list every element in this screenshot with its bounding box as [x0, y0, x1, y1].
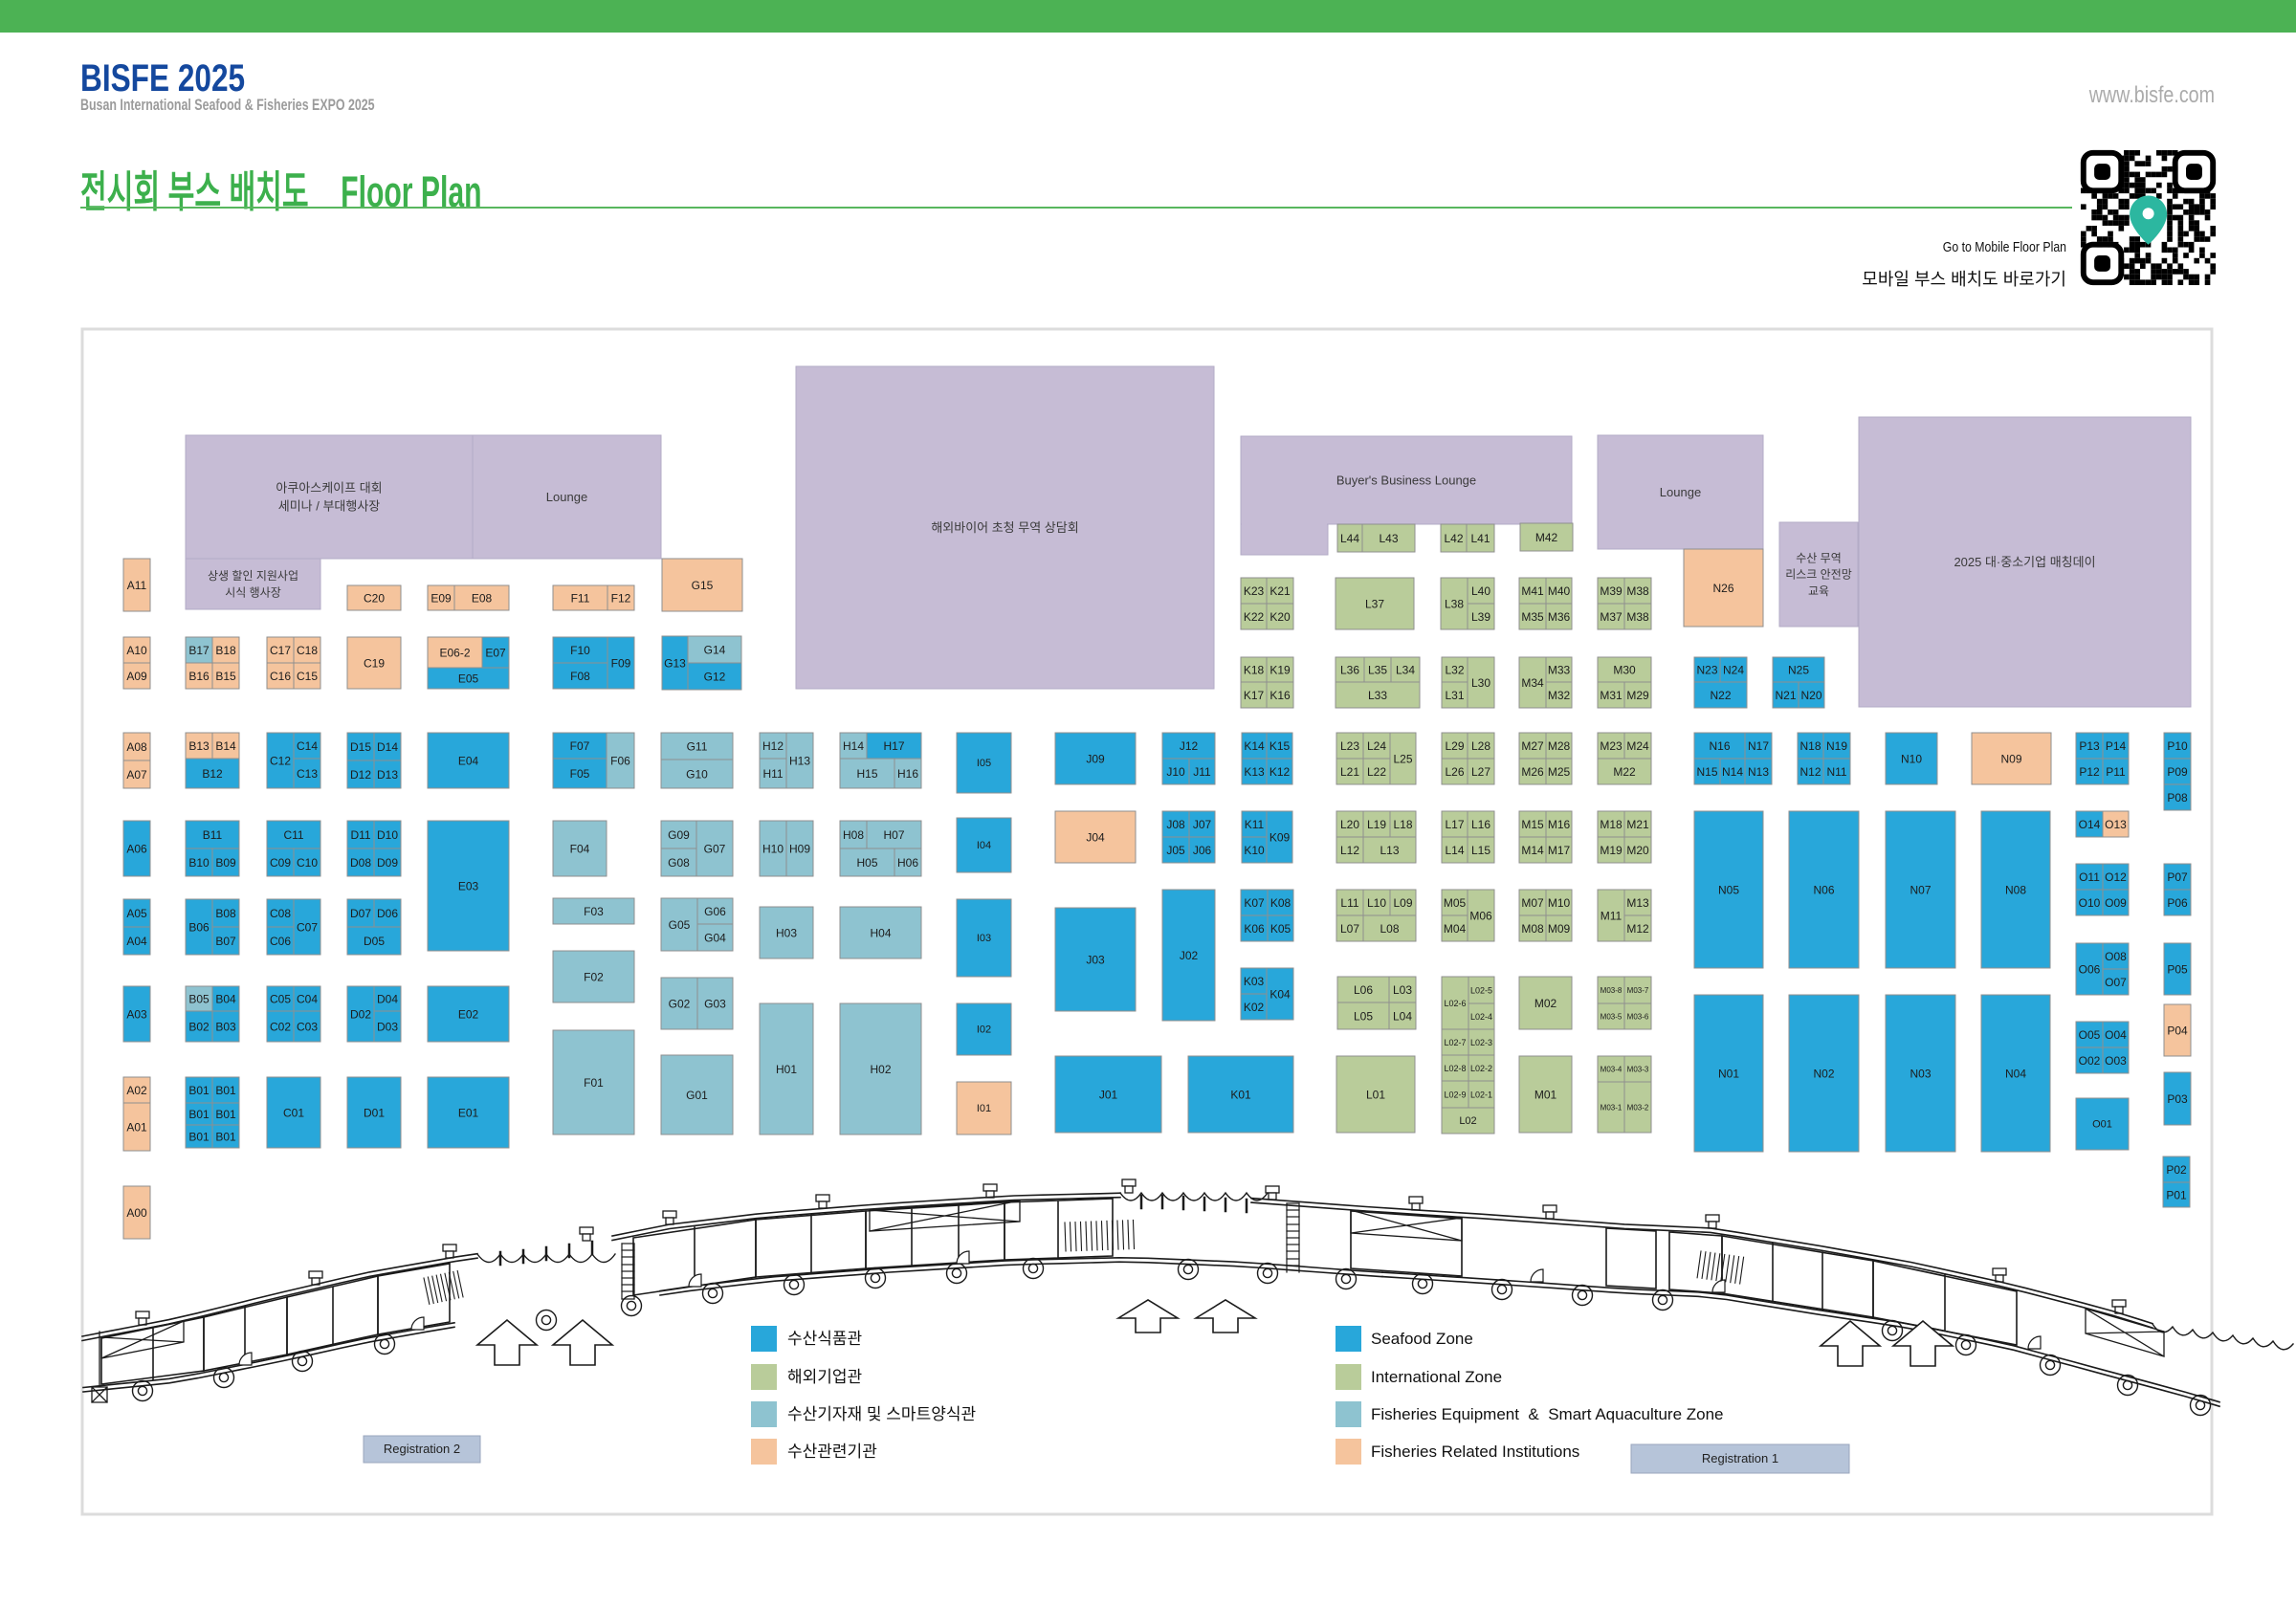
svg-text:G12: G12	[704, 671, 726, 684]
svg-text:L32: L32	[1445, 664, 1464, 677]
svg-text:H03: H03	[776, 927, 797, 940]
svg-text:K05: K05	[1270, 922, 1291, 936]
svg-text:L33: L33	[1368, 689, 1387, 702]
svg-text:P04: P04	[2167, 1024, 2188, 1038]
svg-text:O12: O12	[2105, 870, 2127, 884]
svg-text:O02: O02	[2079, 1054, 2101, 1068]
svg-text:M22: M22	[1613, 765, 1636, 779]
svg-text:L08: L08	[1380, 922, 1399, 936]
svg-text:D02: D02	[350, 1008, 371, 1022]
svg-text:M02: M02	[1534, 997, 1557, 1010]
svg-text:C04: C04	[297, 993, 318, 1006]
svg-text:B01: B01	[215, 1108, 236, 1121]
svg-text:C05: C05	[270, 993, 291, 1006]
svg-text:C07: C07	[297, 921, 318, 935]
svg-text:O14: O14	[2079, 818, 2101, 831]
svg-text:A03: A03	[126, 1008, 147, 1022]
svg-text:B01: B01	[188, 1131, 210, 1144]
svg-text:P11: P11	[2106, 765, 2126, 779]
svg-text:L02-8: L02-8	[1444, 1064, 1466, 1073]
svg-text:H15: H15	[856, 767, 877, 781]
svg-text:M34: M34	[1521, 676, 1544, 690]
svg-text:M19: M19	[1600, 844, 1623, 857]
svg-text:H16: H16	[897, 767, 918, 781]
svg-text:L29: L29	[1445, 739, 1464, 753]
svg-text:M29: M29	[1626, 689, 1649, 702]
svg-text:H02: H02	[870, 1063, 891, 1076]
svg-text:O09: O09	[2105, 896, 2127, 910]
svg-text:D08: D08	[350, 856, 371, 870]
svg-text:해외기업관: 해외기업관	[787, 1368, 862, 1386]
svg-text:M20: M20	[1626, 844, 1649, 857]
svg-text:L26: L26	[1445, 765, 1464, 779]
svg-text:A01: A01	[126, 1121, 147, 1134]
svg-text:N13: N13	[1748, 765, 1769, 779]
svg-text:K16: K16	[1269, 689, 1291, 702]
svg-text:M14: M14	[1521, 844, 1544, 857]
svg-text:P09: P09	[2167, 765, 2188, 779]
svg-text:E09: E09	[430, 592, 452, 606]
svg-text:I01: I01	[977, 1103, 991, 1114]
svg-text:D07: D07	[350, 907, 371, 920]
svg-text:M21: M21	[1626, 818, 1649, 831]
svg-text:C17: C17	[270, 644, 291, 657]
svg-text:C10: C10	[297, 856, 318, 870]
svg-text:B10: B10	[188, 856, 210, 870]
svg-text:L09: L09	[1393, 896, 1412, 910]
svg-text:L31: L31	[1445, 689, 1464, 702]
svg-text:B05: B05	[188, 993, 210, 1006]
svg-text:I05: I05	[977, 758, 991, 769]
svg-text:E03: E03	[458, 880, 479, 893]
svg-text:A02: A02	[126, 1084, 147, 1097]
svg-text:M37: M37	[1600, 610, 1623, 624]
svg-text:L16: L16	[1471, 818, 1490, 831]
svg-text:B18: B18	[215, 644, 236, 657]
svg-text:K12: K12	[1269, 765, 1291, 779]
svg-text:M27: M27	[1521, 739, 1544, 753]
svg-text:B13: B13	[188, 739, 210, 753]
svg-text:A06: A06	[126, 843, 147, 856]
svg-text:K01: K01	[1230, 1089, 1251, 1102]
svg-text:D15: D15	[350, 740, 371, 754]
svg-text:M03-3: M03-3	[1627, 1066, 1649, 1074]
svg-text:B11: B11	[203, 828, 223, 842]
svg-text:M12: M12	[1626, 922, 1649, 936]
svg-text:B01: B01	[215, 1131, 236, 1144]
svg-text:L39: L39	[1471, 610, 1490, 624]
svg-text:F10: F10	[570, 644, 590, 657]
svg-text:M38: M38	[1626, 610, 1649, 624]
svg-text:K09: K09	[1269, 831, 1291, 845]
svg-text:F12: F12	[611, 592, 631, 606]
svg-text:O04: O04	[2105, 1028, 2127, 1042]
svg-text:C19: C19	[364, 657, 385, 671]
svg-text:M03-7: M03-7	[1627, 986, 1649, 995]
svg-text:O08: O08	[2105, 950, 2127, 963]
svg-text:M18: M18	[1600, 818, 1623, 831]
svg-text:K13: K13	[1244, 765, 1265, 779]
svg-text:Lounge: Lounge	[546, 490, 587, 504]
svg-text:M11: M11	[1601, 910, 1623, 923]
svg-text:L35: L35	[1368, 664, 1387, 677]
svg-text:G13: G13	[664, 657, 686, 671]
svg-text:B04: B04	[215, 993, 236, 1006]
svg-text:L34: L34	[1396, 664, 1415, 677]
svg-text:M09: M09	[1548, 922, 1571, 936]
svg-text:K11: K11	[1245, 818, 1265, 831]
svg-text:A08: A08	[126, 740, 147, 754]
svg-text:G03: G03	[704, 998, 726, 1011]
svg-text:N24: N24	[1723, 664, 1744, 677]
svg-text:B03: B03	[215, 1021, 236, 1034]
svg-text:E06-2: E06-2	[439, 647, 470, 660]
svg-text:K22: K22	[1244, 610, 1265, 624]
svg-text:P08: P08	[2167, 791, 2188, 804]
svg-text:K07: K07	[1244, 896, 1265, 910]
svg-text:G08: G08	[668, 856, 690, 870]
svg-text:N09: N09	[2000, 753, 2021, 766]
svg-text:K03: K03	[1244, 975, 1265, 988]
svg-text:N19: N19	[1826, 739, 1847, 753]
svg-text:N05: N05	[1718, 884, 1739, 897]
svg-text:L05: L05	[1354, 1010, 1373, 1024]
svg-text:2025 대·중소기업 매칭데이: 2025 대·중소기업 매칭데이	[1954, 555, 2095, 569]
svg-text:K20: K20	[1269, 610, 1291, 624]
svg-text:H08: H08	[843, 828, 864, 842]
svg-text:H06: H06	[897, 856, 918, 870]
svg-text:J09: J09	[1086, 753, 1105, 766]
svg-text:N25: N25	[1788, 664, 1809, 677]
svg-text:I03: I03	[977, 933, 991, 944]
svg-text:H14: H14	[843, 739, 864, 753]
svg-text:L19: L19	[1367, 818, 1386, 831]
svg-text:H11: H11	[762, 767, 783, 781]
svg-text:D04: D04	[377, 993, 398, 1006]
svg-text:B12: B12	[202, 767, 223, 781]
svg-text:L02-9: L02-9	[1444, 1090, 1466, 1100]
svg-text:H07: H07	[883, 828, 904, 842]
svg-text:M38: M38	[1626, 584, 1649, 598]
svg-text:Seafood Zone: Seafood Zone	[1371, 1330, 1473, 1348]
svg-text:B07: B07	[215, 935, 236, 948]
svg-text:J10: J10	[1166, 765, 1185, 779]
svg-text:M13: M13	[1626, 896, 1649, 910]
svg-text:L41: L41	[1470, 532, 1490, 545]
svg-text:L02-3: L02-3	[1470, 1038, 1492, 1047]
svg-text:F11: F11	[571, 592, 590, 606]
svg-text:H10: H10	[762, 843, 784, 856]
svg-text:D05: D05	[364, 935, 385, 948]
svg-text:N22: N22	[1710, 689, 1731, 702]
svg-text:L10: L10	[1367, 896, 1386, 910]
svg-text:M17: M17	[1548, 844, 1571, 857]
svg-text:B16: B16	[188, 670, 210, 683]
svg-text:N01: N01	[1718, 1068, 1739, 1081]
svg-text:P07: P07	[2167, 870, 2188, 884]
svg-text:P01: P01	[2166, 1189, 2187, 1202]
svg-text:F08: F08	[570, 670, 590, 683]
svg-text:L01: L01	[1366, 1089, 1385, 1102]
svg-text:O05: O05	[2079, 1028, 2101, 1042]
svg-text:P05: P05	[2167, 963, 2188, 977]
svg-text:C20: C20	[364, 592, 385, 606]
svg-text:N23: N23	[1696, 664, 1717, 677]
svg-text:수산기자재 및 스마트양식관: 수산기자재 및 스마트양식관	[787, 1405, 976, 1423]
svg-text:N17: N17	[1748, 739, 1769, 753]
svg-text:L42: L42	[1444, 532, 1463, 545]
svg-text:B01: B01	[188, 1084, 210, 1097]
svg-text:L20: L20	[1340, 818, 1359, 831]
svg-text:N20: N20	[1800, 689, 1821, 702]
svg-text:K10: K10	[1244, 844, 1265, 857]
svg-text:K04: K04	[1269, 988, 1291, 1002]
svg-text:M03-2: M03-2	[1627, 1104, 1649, 1112]
svg-text:L15: L15	[1471, 844, 1490, 857]
svg-text:C18: C18	[297, 644, 318, 657]
svg-text:A00: A00	[126, 1206, 147, 1220]
svg-text:K21: K21	[1269, 584, 1291, 598]
svg-text:N07: N07	[1910, 884, 1931, 897]
svg-text:G11: G11	[687, 740, 708, 754]
svg-text:L23: L23	[1340, 739, 1359, 753]
svg-text:B09: B09	[215, 856, 236, 870]
svg-text:L06: L06	[1354, 983, 1373, 997]
svg-text:H04: H04	[870, 927, 891, 940]
svg-text:K18: K18	[1244, 664, 1265, 677]
svg-text:H05: H05	[856, 856, 877, 870]
svg-text:M01: M01	[1534, 1089, 1557, 1102]
svg-text:H01: H01	[776, 1063, 797, 1076]
svg-text:L14: L14	[1445, 844, 1464, 857]
svg-text:K23: K23	[1244, 584, 1265, 598]
svg-text:N02: N02	[1813, 1068, 1834, 1081]
svg-text:G04: G04	[704, 932, 726, 945]
svg-text:N15: N15	[1696, 765, 1717, 779]
svg-text:M30: M30	[1613, 664, 1636, 677]
svg-text:G02: G02	[669, 998, 691, 1011]
svg-text:N11: N11	[1826, 765, 1846, 779]
svg-text:G05: G05	[669, 918, 691, 932]
svg-text:C09: C09	[270, 856, 291, 870]
svg-text:M05: M05	[1444, 896, 1467, 910]
svg-text:F06: F06	[610, 755, 630, 768]
svg-text:E05: E05	[458, 672, 479, 686]
svg-text:L02: L02	[1459, 1115, 1476, 1127]
svg-text:H12: H12	[762, 739, 784, 753]
svg-text:J08: J08	[1166, 818, 1185, 831]
svg-text:M04: M04	[1444, 922, 1467, 936]
svg-text:M24: M24	[1626, 739, 1649, 753]
svg-text:M16: M16	[1548, 818, 1571, 831]
svg-text:H09: H09	[789, 843, 810, 856]
svg-text:I02: I02	[977, 1024, 991, 1036]
svg-text:J12: J12	[1180, 739, 1199, 753]
svg-text:L24: L24	[1367, 739, 1386, 753]
svg-text:M31: M31	[1600, 689, 1623, 702]
svg-text:L11: L11	[1340, 896, 1358, 910]
svg-text:G06: G06	[704, 905, 726, 918]
svg-text:B01: B01	[215, 1084, 236, 1097]
svg-text:L04: L04	[1393, 1010, 1412, 1024]
svg-text:K19: K19	[1269, 664, 1291, 677]
svg-text:C15: C15	[297, 670, 318, 683]
svg-text:L22: L22	[1367, 765, 1386, 779]
svg-text:A11: A11	[127, 579, 147, 592]
svg-text:D09: D09	[377, 856, 398, 870]
svg-text:O01: O01	[2092, 1119, 2112, 1131]
svg-text:H17: H17	[883, 739, 904, 753]
svg-text:C02: C02	[270, 1021, 291, 1034]
svg-text:C03: C03	[297, 1021, 318, 1034]
svg-text:F05: F05	[570, 767, 590, 781]
svg-text:D03: D03	[377, 1021, 398, 1034]
svg-text:N21: N21	[1775, 689, 1796, 702]
svg-text:N16: N16	[1709, 739, 1730, 753]
svg-text:L02-7: L02-7	[1444, 1038, 1466, 1047]
svg-text:M28: M28	[1548, 739, 1571, 753]
svg-text:M36: M36	[1548, 610, 1571, 624]
svg-text:해외바이어 초청 무역 상담회: 해외바이어 초청 무역 상담회	[931, 520, 1078, 535]
svg-text:K15: K15	[1269, 739, 1291, 753]
svg-text:F01: F01	[584, 1076, 604, 1090]
svg-text:N14: N14	[1722, 765, 1743, 779]
svg-text:L30: L30	[1471, 676, 1490, 690]
svg-text:D01: D01	[364, 1107, 385, 1120]
svg-text:L07: L07	[1340, 922, 1359, 936]
svg-text:N18: N18	[1799, 739, 1821, 753]
svg-text:M08: M08	[1521, 922, 1544, 936]
svg-text:B01: B01	[188, 1108, 210, 1121]
svg-text:C13: C13	[297, 767, 318, 781]
svg-text:N08: N08	[2005, 884, 2026, 897]
svg-text:M23: M23	[1600, 739, 1623, 753]
svg-text:E02: E02	[458, 1008, 479, 1022]
svg-text:B02: B02	[188, 1021, 210, 1034]
svg-text:L44: L44	[1340, 532, 1359, 545]
svg-text:M25: M25	[1548, 765, 1571, 779]
svg-text:D06: D06	[377, 907, 398, 920]
svg-text:N06: N06	[1813, 884, 1834, 897]
svg-text:B15: B15	[215, 670, 236, 683]
svg-text:C16: C16	[270, 670, 291, 683]
svg-text:B14: B14	[215, 739, 236, 753]
svg-text:N10: N10	[1901, 753, 1922, 766]
svg-text:C08: C08	[270, 907, 291, 920]
svg-text:L17: L17	[1445, 818, 1464, 831]
svg-text:Registration 2: Registration 2	[384, 1442, 460, 1456]
svg-text:N04: N04	[2005, 1068, 2026, 1081]
svg-text:M03-4: M03-4	[1601, 1066, 1623, 1074]
svg-text:D10: D10	[377, 828, 398, 842]
svg-text:M03-5: M03-5	[1601, 1013, 1623, 1022]
svg-text:K17: K17	[1244, 689, 1265, 702]
svg-text:International Zone: International Zone	[1371, 1368, 1502, 1386]
svg-text:G07: G07	[704, 843, 726, 856]
svg-text:L28: L28	[1471, 739, 1490, 753]
svg-text:L02-1: L02-1	[1470, 1090, 1492, 1100]
svg-text:D11: D11	[350, 828, 370, 842]
svg-text:J05: J05	[1166, 844, 1185, 857]
svg-text:E08: E08	[472, 592, 493, 606]
svg-text:F03: F03	[584, 905, 604, 918]
svg-text:L43: L43	[1379, 532, 1398, 545]
svg-text:M15: M15	[1521, 818, 1544, 831]
svg-text:G15: G15	[692, 579, 714, 592]
svg-text:P13: P13	[2079, 739, 2100, 753]
svg-text:L03: L03	[1393, 983, 1412, 997]
svg-text:L02-4: L02-4	[1470, 1012, 1492, 1022]
svg-text:O03: O03	[2105, 1054, 2127, 1068]
svg-text:N03: N03	[1910, 1068, 1931, 1081]
svg-text:Registration 1: Registration 1	[1702, 1451, 1778, 1465]
svg-text:A10: A10	[126, 644, 147, 657]
svg-text:C12: C12	[270, 755, 291, 768]
svg-text:O13: O13	[2105, 818, 2127, 831]
svg-text:P02: P02	[2166, 1163, 2187, 1177]
svg-text:O06: O06	[2079, 963, 2101, 977]
svg-text:C11: C11	[283, 828, 303, 842]
svg-text:M10: M10	[1548, 896, 1571, 910]
svg-text:J04: J04	[1086, 831, 1105, 845]
svg-text:L25: L25	[1393, 753, 1412, 766]
svg-text:J11: J11	[1193, 765, 1211, 779]
svg-text:L18: L18	[1393, 818, 1412, 831]
svg-text:G14: G14	[704, 644, 726, 657]
svg-text:I04: I04	[977, 840, 991, 851]
svg-text:M32: M32	[1548, 689, 1571, 702]
svg-text:P03: P03	[2167, 1092, 2188, 1106]
svg-text:N26: N26	[1712, 582, 1733, 595]
svg-text:E07: E07	[485, 647, 506, 660]
svg-text:M07: M07	[1521, 896, 1544, 910]
svg-text:M03-1: M03-1	[1601, 1104, 1623, 1112]
svg-text:E01: E01	[458, 1107, 479, 1120]
svg-text:L02-6: L02-6	[1444, 999, 1466, 1008]
svg-text:L36: L36	[1340, 664, 1359, 677]
svg-text:G09: G09	[668, 828, 690, 842]
svg-text:B08: B08	[215, 907, 236, 920]
svg-text:D13: D13	[377, 768, 398, 782]
svg-text:G10: G10	[686, 768, 708, 782]
svg-text:L21: L21	[1340, 765, 1359, 779]
svg-text:J02: J02	[1180, 949, 1199, 962]
svg-text:L02-5: L02-5	[1470, 986, 1492, 996]
svg-text:L02-2: L02-2	[1470, 1064, 1492, 1073]
svg-text:O10: O10	[2079, 896, 2101, 910]
svg-text:P12: P12	[2079, 765, 2100, 779]
svg-text:P14: P14	[2106, 739, 2127, 753]
svg-text:A04: A04	[126, 935, 147, 948]
svg-text:Fisheries Related Institutions: Fisheries Related Institutions	[1371, 1443, 1579, 1461]
svg-text:J01: J01	[1099, 1089, 1118, 1102]
svg-text:N12: N12	[1799, 765, 1821, 779]
svg-text:F04: F04	[570, 843, 590, 856]
svg-text:A05: A05	[126, 907, 147, 920]
svg-text:M03-6: M03-6	[1627, 1013, 1649, 1022]
svg-text:M39: M39	[1600, 584, 1623, 598]
svg-text:L12: L12	[1340, 844, 1359, 857]
svg-text:J03: J03	[1086, 954, 1105, 967]
svg-text:M33: M33	[1548, 664, 1571, 677]
svg-text:F09: F09	[611, 657, 631, 671]
svg-text:M40: M40	[1548, 584, 1571, 598]
svg-text:P06: P06	[2167, 896, 2188, 910]
svg-text:L37: L37	[1365, 598, 1384, 611]
svg-text:C14: C14	[297, 739, 318, 753]
svg-text:D14: D14	[377, 740, 398, 754]
svg-text:J07: J07	[1193, 818, 1212, 831]
